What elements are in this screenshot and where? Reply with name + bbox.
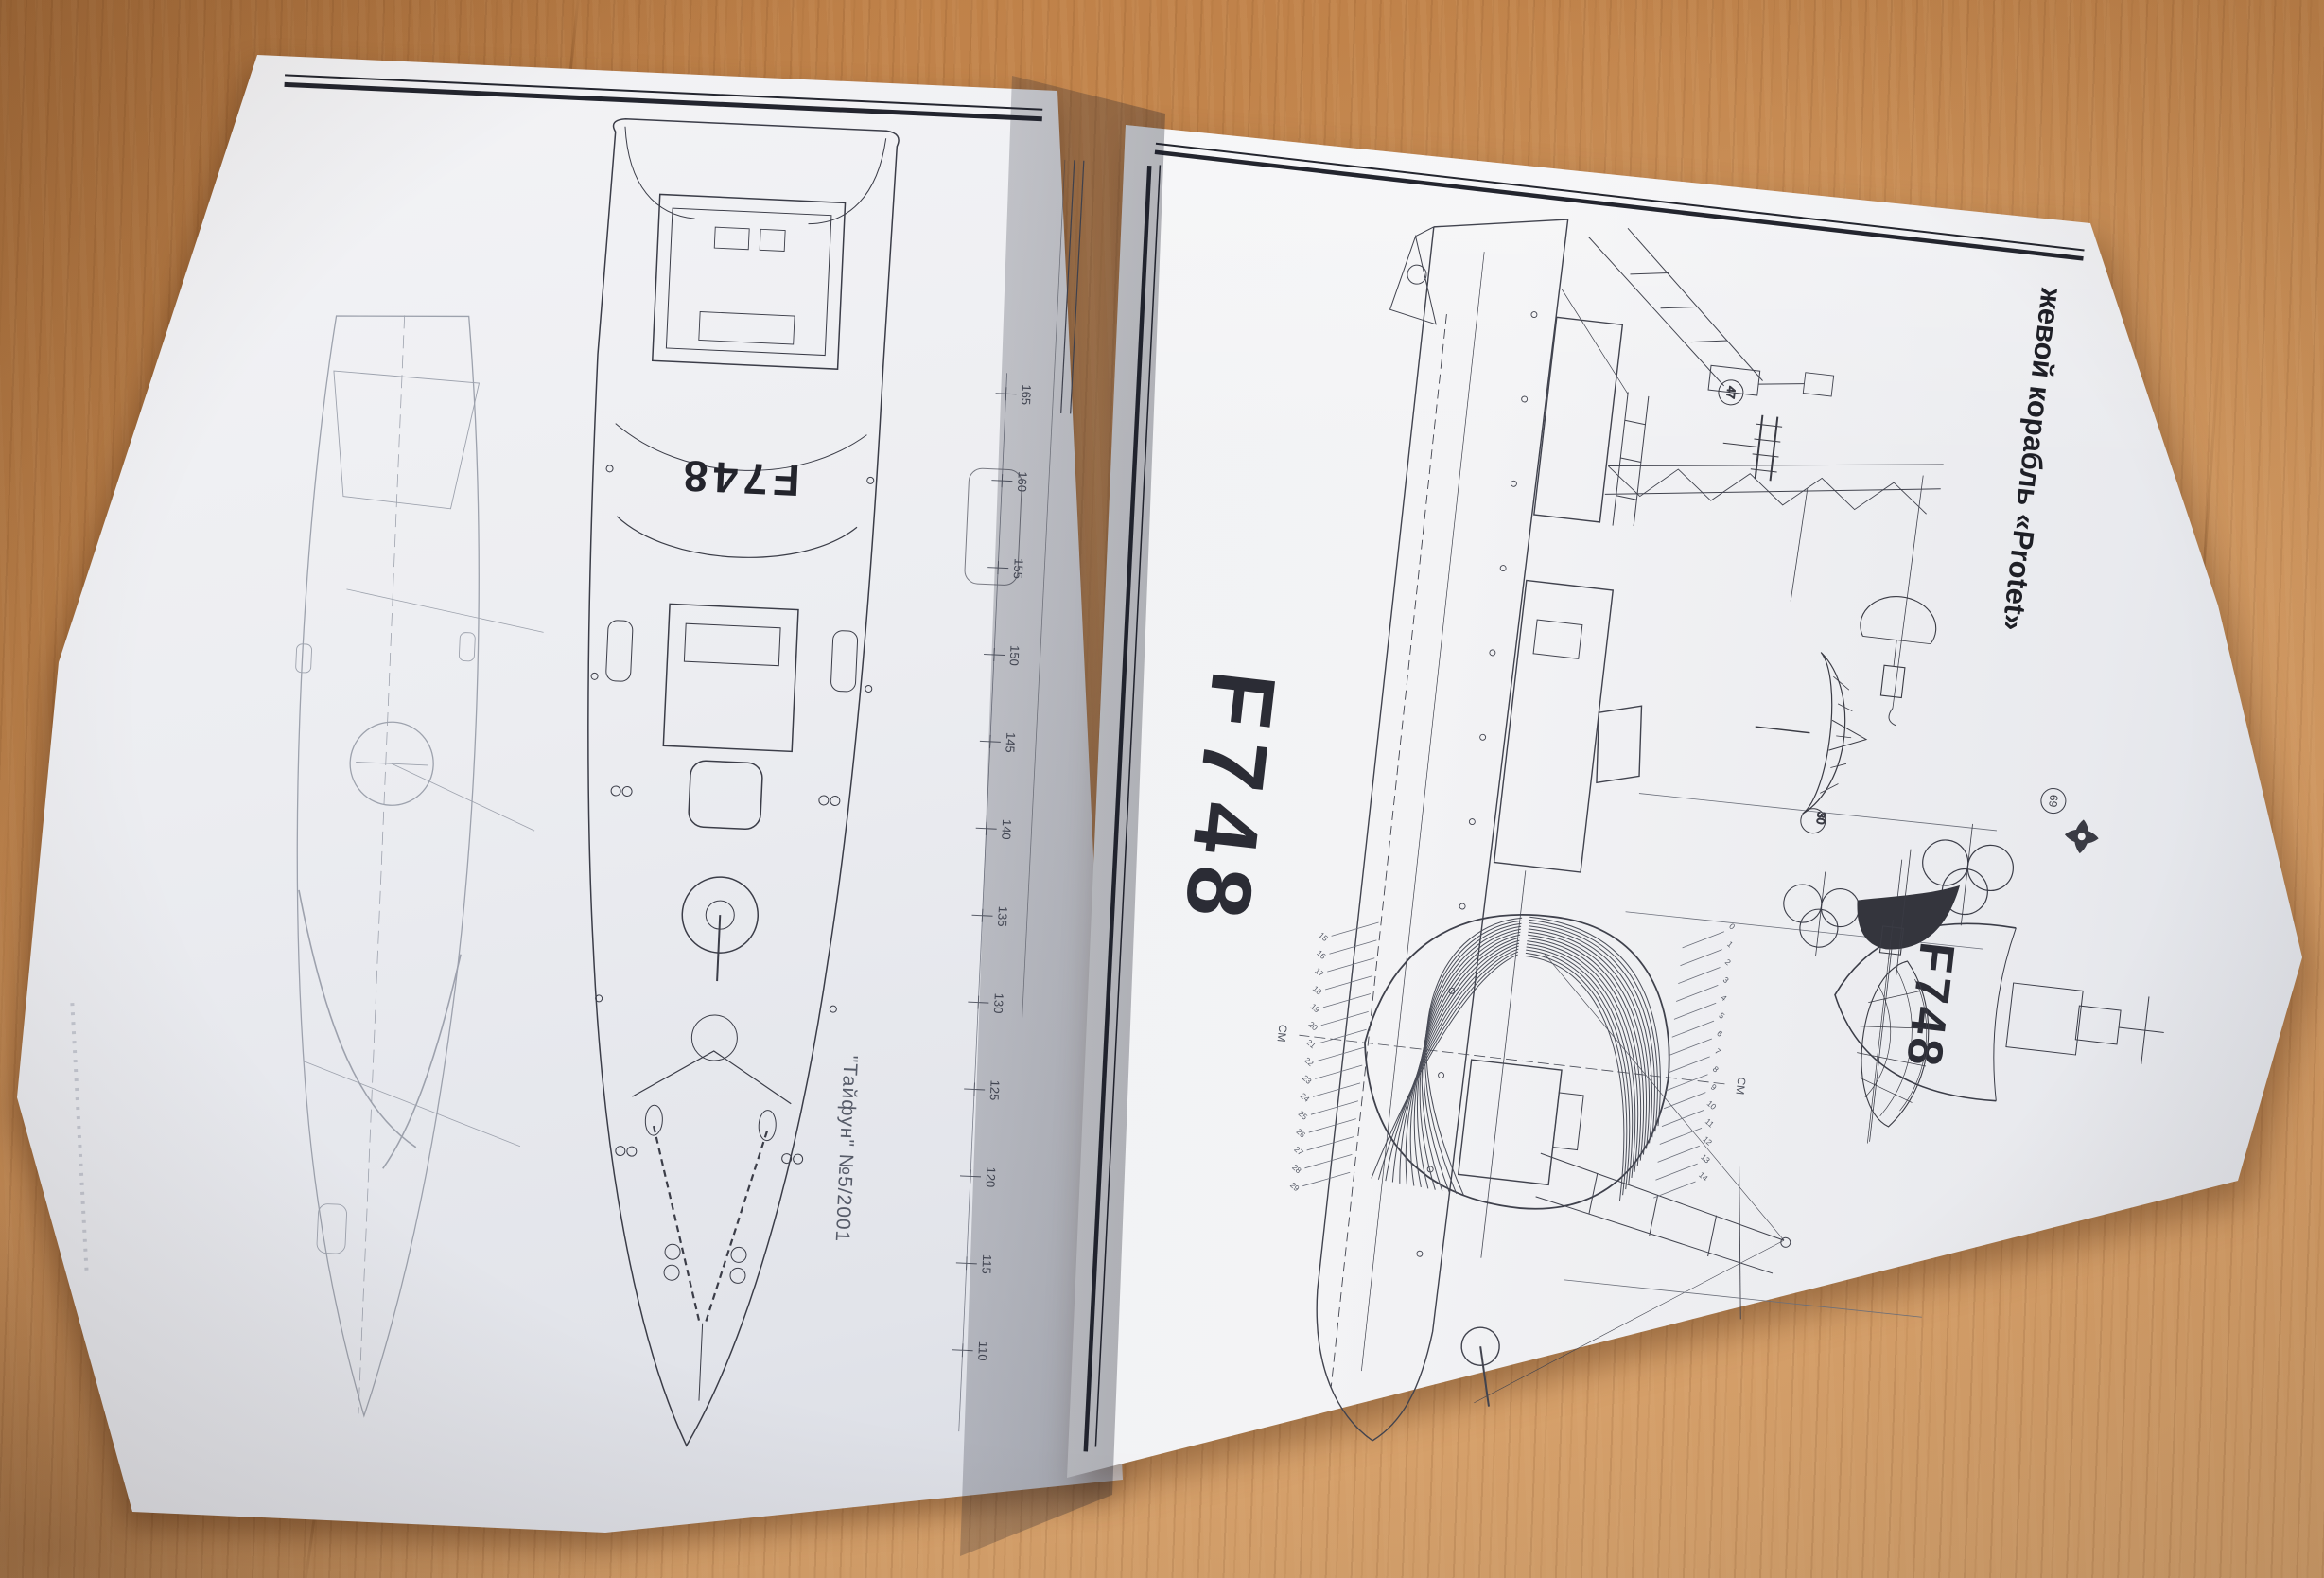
station-label: 27 — [1292, 1145, 1305, 1158]
centerfold-edge-lines — [945, 156, 1084, 1019]
station-label: 23 — [1301, 1073, 1314, 1086]
deck-marking-hull-number: F748 — [677, 451, 801, 506]
station-label: 1 — [1725, 939, 1735, 950]
station-label: 21 — [1304, 1037, 1318, 1050]
blueprint-artwork: F748 16516015515014514013513012512011511… — [0, 0, 2324, 1578]
antenna-details: 47 30 — [1635, 378, 2015, 1150]
station-label: 22 — [1302, 1055, 1316, 1068]
station-label: 6 — [1715, 1028, 1724, 1039]
station-label: 24 — [1299, 1091, 1312, 1104]
frame-label: 155 — [1011, 558, 1026, 579]
issue-caption: "Тайфун" №5/2001 — [831, 1055, 862, 1243]
station-label: 29 — [1288, 1180, 1302, 1193]
station-label: 3 — [1721, 975, 1731, 986]
bow-hull-number: F748 — [1896, 939, 1965, 1072]
station-label: 5 — [1717, 1010, 1726, 1021]
photo-of-open-magazine: F748 16516015515014514013513012512011511… — [0, 0, 2324, 1578]
station-label: 2 — [1723, 957, 1733, 968]
spine-fine-print — [61, 1003, 99, 1271]
station-label: 25 — [1297, 1109, 1310, 1122]
body-plan: 01234567891011121314 1516171819202122232… — [1252, 845, 1769, 1287]
frame-label: 135 — [995, 906, 1010, 927]
detail-marker: 30 — [1813, 811, 1827, 825]
left-page-border-rule — [285, 75, 1043, 118]
aft-crane-lattice — [1517, 289, 1959, 728]
left-page-artwork: F748 16516015515014514013513012512011511… — [53, 67, 1086, 1461]
right-page-border-rule — [1003, 143, 2084, 1549]
station-label: 8 — [1711, 1064, 1721, 1075]
frame-label: 130 — [991, 992, 1006, 1013]
frame-label: 165 — [1019, 384, 1034, 405]
frame-ruler: 165160155150145140135130125120115110 — [949, 373, 1035, 1433]
station-label: 4 — [1720, 992, 1729, 1003]
page-title-vertical: жевой корабль «Protet» — [1996, 286, 2068, 633]
body-plan-upper-station-labels: 01234567891011121314 — [1653, 916, 1739, 1203]
station-label: 17 — [1313, 966, 1326, 979]
profile-drawing — [1262, 201, 2060, 1503]
mesh-dish-crescent — [1746, 646, 1876, 820]
station-label: 19 — [1309, 1002, 1322, 1015]
frame-label: 120 — [983, 1166, 998, 1187]
station-label: 14 — [1697, 1170, 1710, 1183]
station-label: 0 — [1727, 921, 1737, 932]
detail-marker: 47 — [1723, 385, 1738, 399]
frame-label: 145 — [1003, 732, 1018, 753]
frame-label: 125 — [987, 1079, 1003, 1100]
frame-label: 115 — [979, 1254, 994, 1274]
detail-marker: 69 — [2046, 794, 2060, 808]
station-label: 26 — [1295, 1127, 1308, 1140]
station-label: 11 — [1704, 1116, 1716, 1130]
station-label: 7 — [1713, 1046, 1722, 1057]
frame-label: 160 — [1015, 471, 1030, 492]
stern-gear — [1389, 223, 1446, 324]
frame-label: 150 — [1007, 645, 1022, 666]
frame-label: 140 — [999, 819, 1014, 840]
body-plan-axis-top: СМ — [1733, 1077, 1748, 1096]
main-deck-plan: F748 — [549, 118, 900, 1453]
profile-hull-number: F748 — [1164, 666, 1295, 936]
upper-deck-plan-faint — [262, 309, 558, 1423]
station-label: 9 — [1709, 1082, 1719, 1093]
propeller-cluster-fwd — [1778, 868, 1863, 961]
station-label: 16 — [1315, 948, 1328, 961]
station-label: 13 — [1699, 1152, 1712, 1166]
body-plan-axis-bottom: СМ — [1275, 1024, 1290, 1043]
station-label: 15 — [1317, 930, 1330, 943]
propeller-detail: 69 — [2036, 787, 2104, 855]
aft-mast — [1573, 224, 1847, 404]
station-label: 12 — [1701, 1134, 1714, 1148]
station-label: 20 — [1307, 1020, 1320, 1033]
frame-label: 110 — [975, 1341, 990, 1361]
right-page-artwork: F748 — [1003, 143, 2251, 1568]
station-label: 18 — [1311, 984, 1324, 997]
station-label: 10 — [1705, 1098, 1719, 1112]
station-label: 28 — [1290, 1163, 1303, 1176]
